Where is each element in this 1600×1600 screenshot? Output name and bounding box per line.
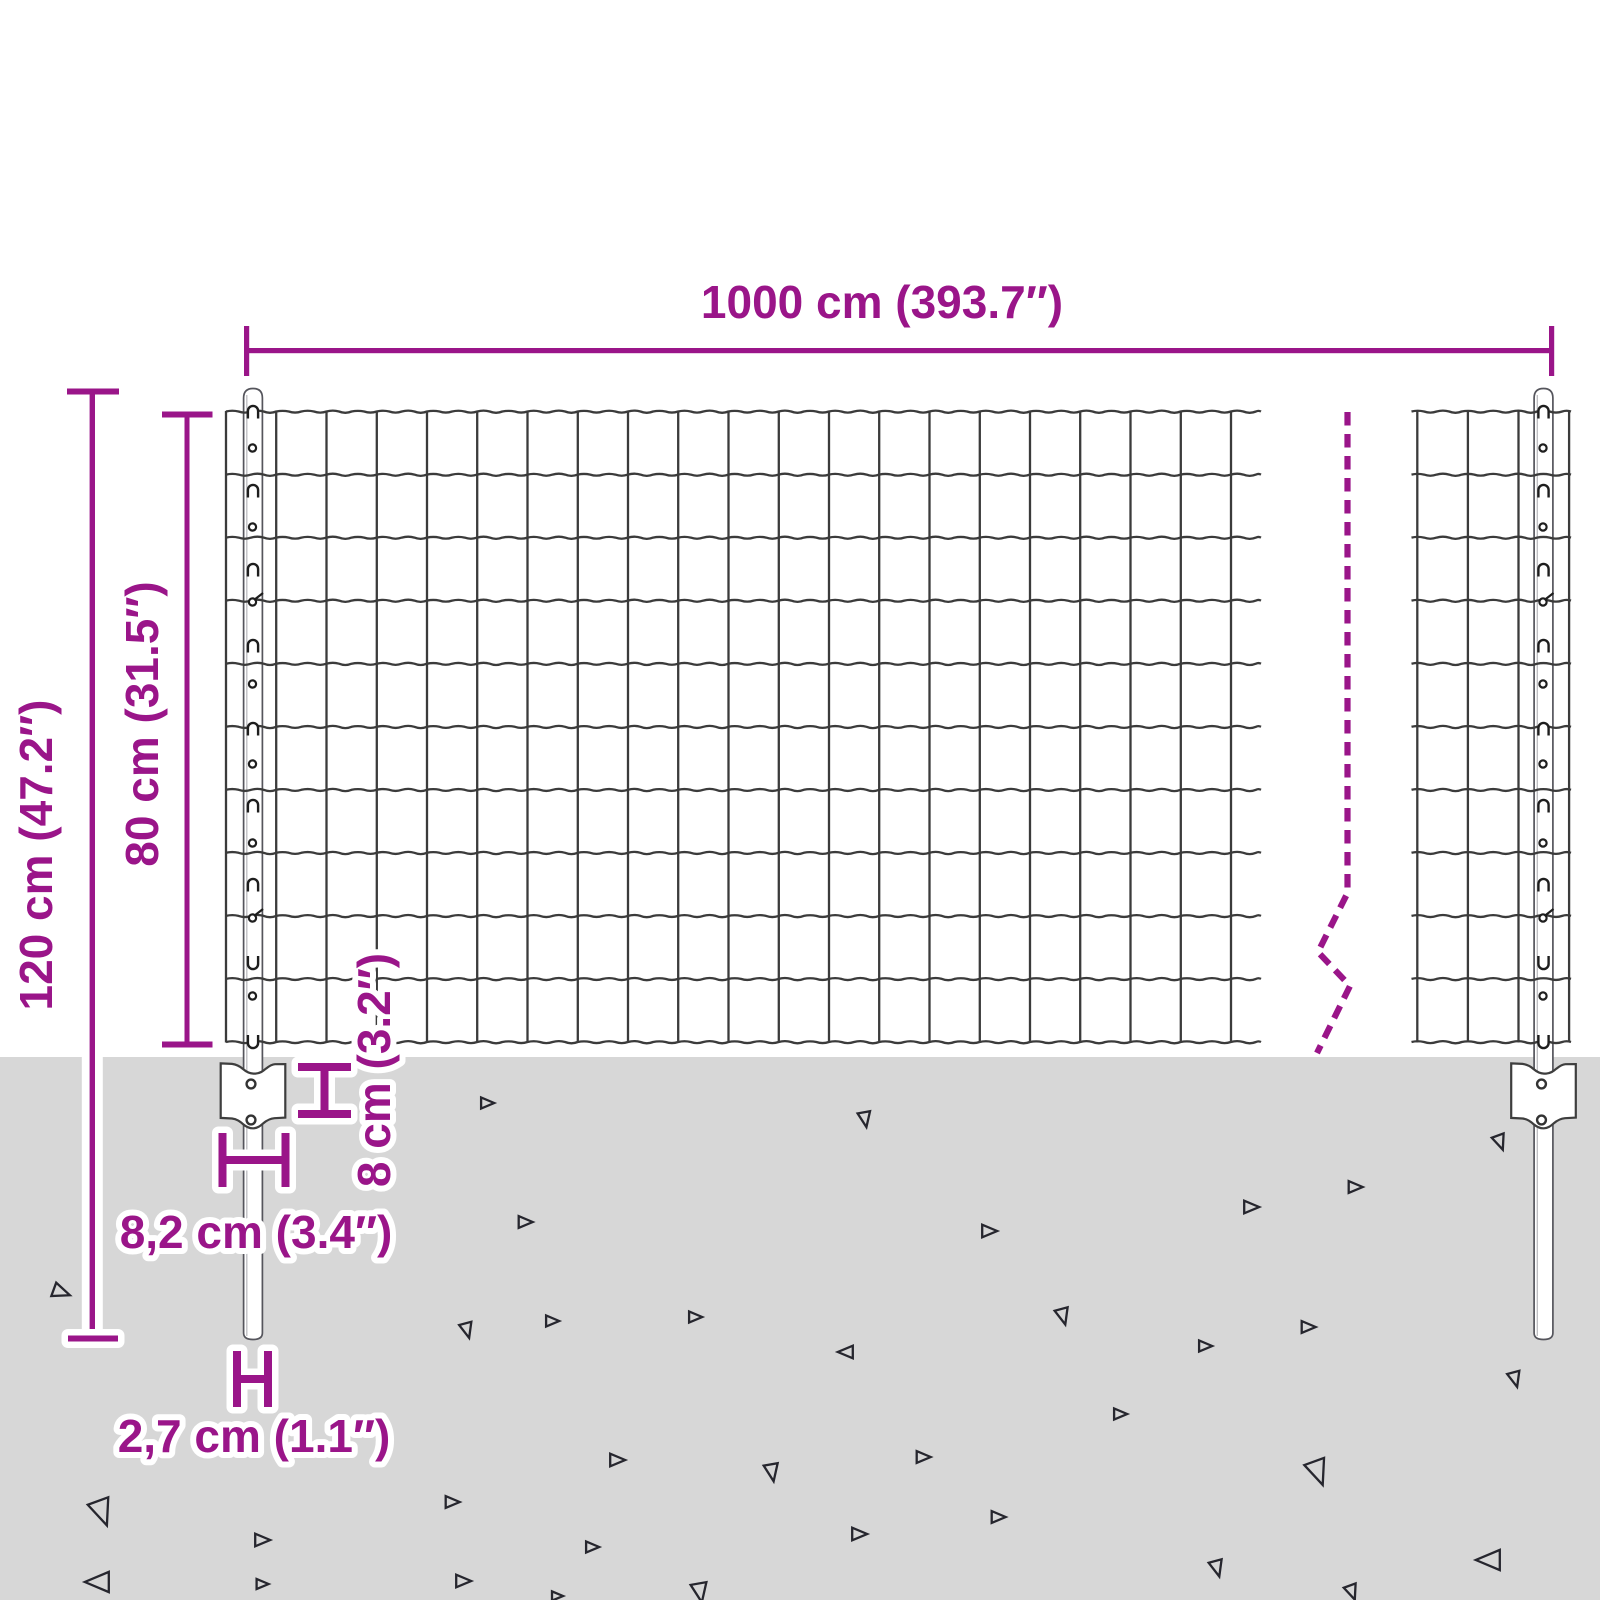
svg-text:8 cm (3.2″): 8 cm (3.2″)	[348, 953, 400, 1187]
svg-text:2,7 cm (1.1″): 2,7 cm (1.1″)	[118, 1410, 391, 1462]
svg-text:1000 cm (393.7″): 1000 cm (393.7″)	[701, 276, 1063, 328]
svg-text:120 cm (47.2″): 120 cm (47.2″)	[10, 700, 62, 1011]
svg-text:80 cm (31.5″): 80 cm (31.5″)	[116, 581, 168, 866]
svg-text:8,2 cm (3.4″): 8,2 cm (3.4″)	[120, 1206, 393, 1258]
